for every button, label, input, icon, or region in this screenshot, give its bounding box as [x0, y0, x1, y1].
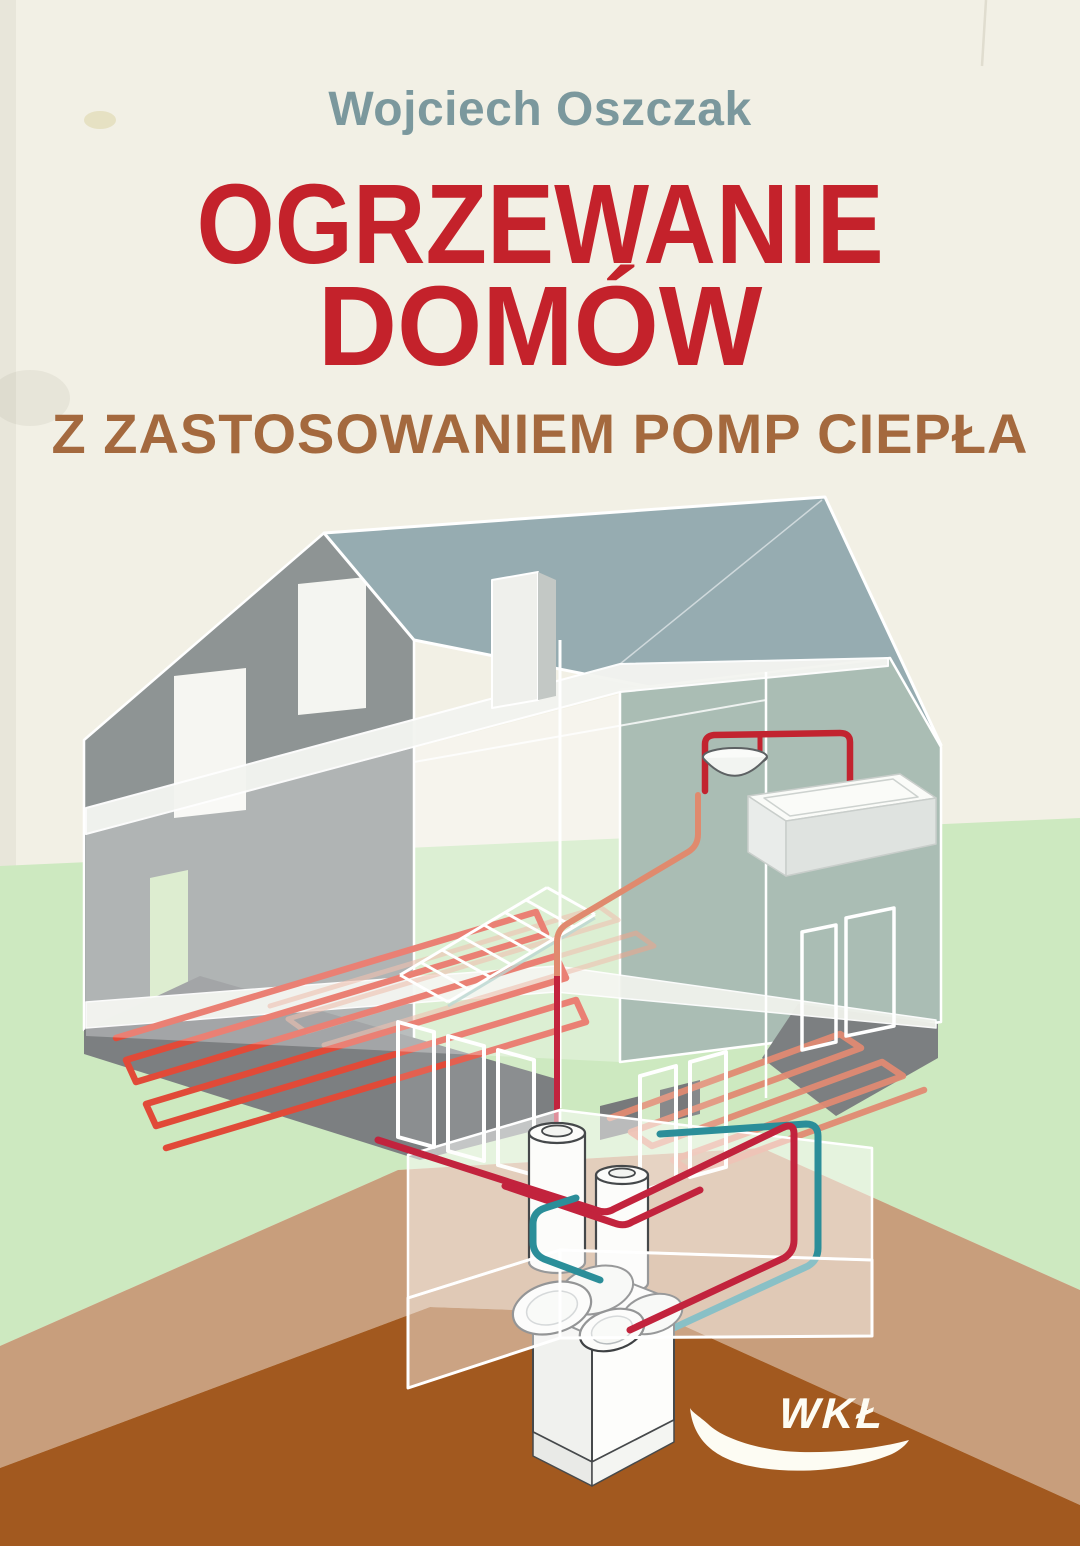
title-line-2-text: DOMÓW — [318, 270, 762, 383]
title-line-2: DOMÓW — [0, 270, 1080, 383]
chimney-side — [538, 572, 556, 700]
subtitle: Z ZASTOSOWANIEM POMP CIEPŁA — [0, 406, 1080, 462]
attic-window — [298, 577, 366, 715]
subtitle-text: Z ZASTOSOWANIEM POMP CIEPŁA — [51, 406, 1028, 462]
author-name-text: Wojciech Oszczak — [328, 86, 751, 134]
author-name: Wojciech Oszczak — [0, 86, 1080, 134]
book-cover: Wojciech Oszczak OGRZEWANIE DOMÓW Z ZAST… — [0, 0, 1080, 1546]
basement-wall-front-right — [560, 1250, 872, 1338]
publisher-logo-text: WKŁ — [774, 1393, 892, 1436]
chimney — [492, 572, 538, 708]
